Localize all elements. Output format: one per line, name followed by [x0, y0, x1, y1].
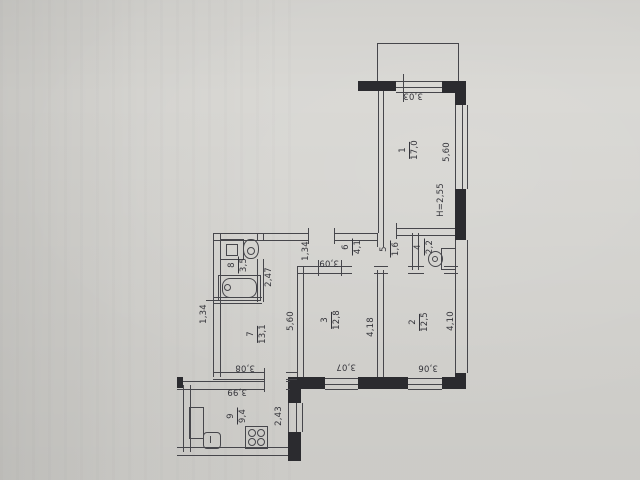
dim-room1-width: 3,03 [403, 91, 423, 100]
room-area: 2,2 [426, 240, 435, 254]
room-area: 12,8 [333, 310, 342, 330]
window [455, 105, 468, 189]
stove-icon [245, 426, 268, 449]
wall [378, 91, 384, 233]
wall [455, 240, 468, 373]
room-area: 9,4 [239, 409, 248, 423]
wall [286, 372, 297, 380]
dimension-tick [334, 228, 335, 244]
wall [442, 377, 458, 389]
room-number: 3 [321, 317, 330, 323]
dimension-tick [341, 260, 342, 276]
wall [455, 81, 466, 105]
room-2-label: 212,5 [409, 312, 429, 332]
dim-room3-height: 4,18 [367, 317, 376, 337]
room-number: 8 [228, 262, 237, 268]
wall [455, 189, 466, 240]
bathtub-drain-icon [224, 284, 231, 291]
room-9-label: 99,4 [227, 408, 247, 425]
dim-hall-width: 3,09 [319, 258, 339, 267]
wall [177, 447, 288, 456]
balcony-outline [377, 43, 459, 84]
room-5-label: 51,6 [380, 241, 400, 258]
wall [358, 81, 396, 91]
room-number: 1 [399, 147, 408, 153]
room-number: 5 [380, 246, 389, 252]
dim-bath-depth: 2,47 [265, 267, 274, 287]
dim-room7-height: 5,60 [287, 311, 296, 331]
ceiling-height-label: H=2,55 [437, 183, 446, 217]
room-3-label: 312,8 [321, 310, 341, 330]
room-area: 12,5 [421, 312, 430, 332]
window [408, 378, 442, 390]
dim-room7-width: 3,08 [235, 363, 255, 372]
room-4-label: 42,2 [414, 239, 434, 256]
wall [288, 432, 301, 461]
room-6-label: 64,1 [342, 239, 362, 256]
wall [396, 228, 455, 236]
dimension-tick [396, 223, 397, 239]
wall [358, 377, 408, 389]
toilet-dot-icon [432, 256, 438, 262]
room-area: 1,6 [392, 242, 401, 256]
room-1-label: 117,0 [399, 140, 419, 160]
wall [377, 270, 384, 377]
wall [177, 377, 183, 388]
sink-faucet-icon [210, 436, 211, 443]
room-area: 13,1 [259, 324, 268, 344]
room-number: 4 [414, 244, 423, 250]
wall [288, 389, 301, 403]
dim-kitchen-depth: 2,43 [275, 406, 284, 426]
wall [286, 381, 290, 390]
wall [297, 266, 304, 377]
room-number: 9 [227, 413, 236, 419]
dim-room2-width: 3,06 [418, 363, 438, 372]
sink-icon [203, 432, 221, 449]
toilet-bowl-icon [247, 247, 255, 255]
dim-hall-depth: 1,34 [302, 241, 311, 261]
room-number: 6 [342, 244, 351, 250]
dim-room1-height: 5,60 [443, 142, 452, 162]
dim-left-wall: 1,34 [200, 304, 209, 324]
wall [257, 233, 264, 241]
window [325, 378, 358, 390]
wall [408, 266, 424, 274]
dim-room2-height: 4,10 [447, 311, 456, 331]
toilet-tank-icon [441, 248, 456, 270]
room-area: 3,5 [240, 258, 249, 272]
room-number: 7 [247, 331, 256, 337]
window [288, 403, 303, 432]
washbasin-bowl-icon [226, 244, 238, 256]
room-7-label: 713,1 [247, 324, 267, 344]
dim-kitchen-width: 3,99 [227, 387, 247, 396]
room-area: 17,0 [411, 140, 420, 160]
kitchen-counter [189, 407, 204, 439]
room-number: 2 [409, 319, 418, 325]
dim-room3-width: 3,07 [336, 362, 356, 371]
room-8-label: 83,5 [228, 257, 248, 274]
dimension-tick [264, 368, 265, 392]
floor-plan-photo: 117,0 64,1 51,6 42,2 83,5 713,1 312,8 21… [0, 0, 640, 480]
room-area: 4,1 [354, 240, 363, 254]
